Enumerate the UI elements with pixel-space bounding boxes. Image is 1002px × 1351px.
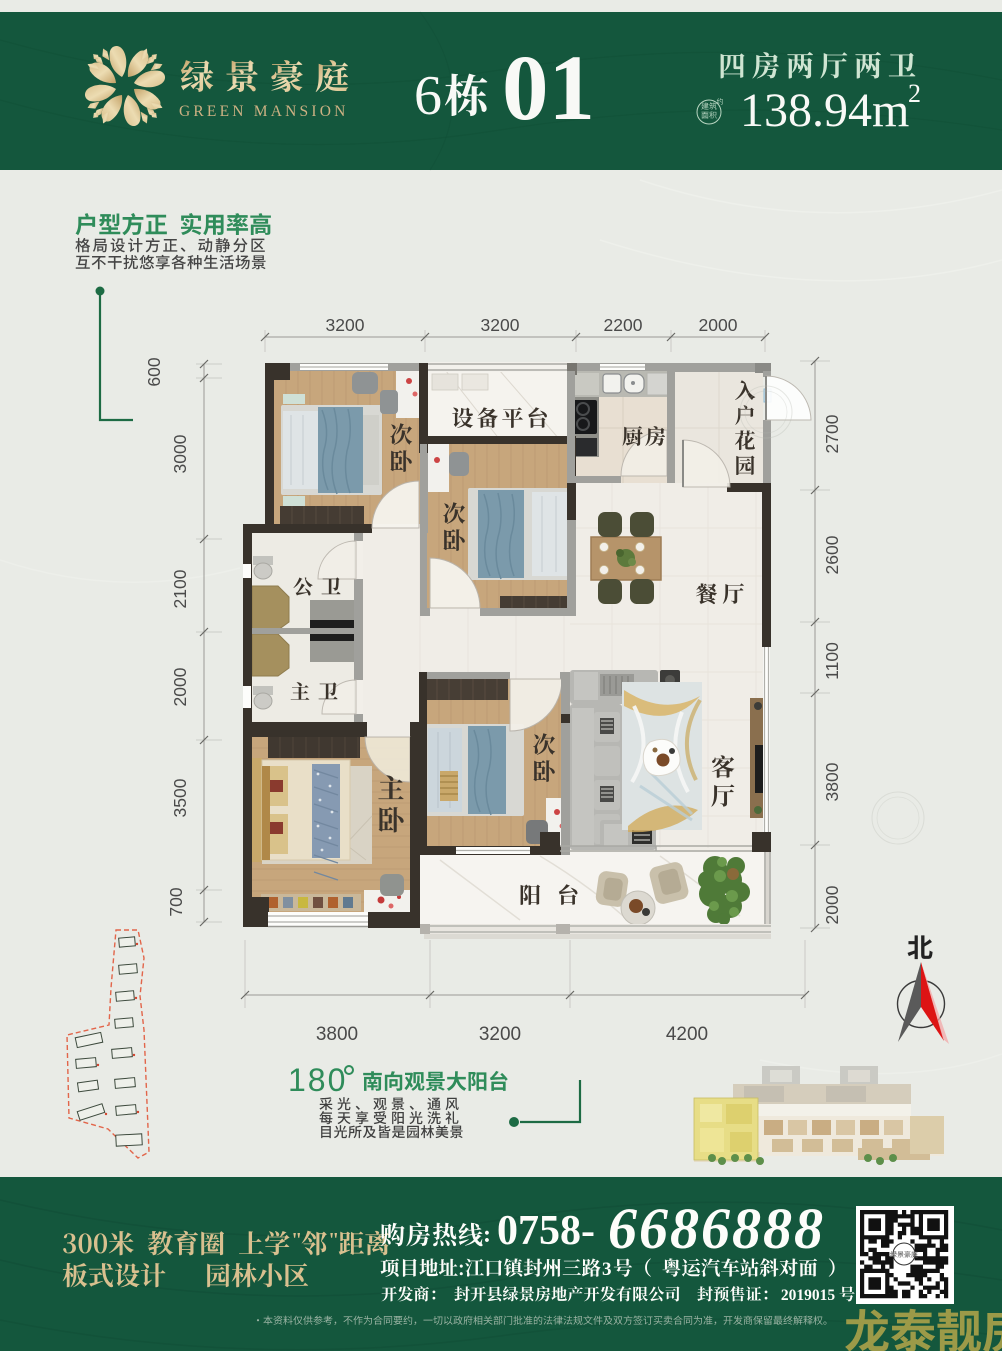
svg-text:": "	[328, 1229, 339, 1251]
svg-text:2100: 2100	[170, 569, 190, 608]
svg-text:3200: 3200	[481, 315, 520, 335]
svg-text:01: 01	[502, 37, 595, 140]
svg-text:2019015: 2019015	[781, 1287, 836, 1304]
svg-text:2000: 2000	[170, 667, 190, 706]
svg-text:600: 600	[144, 357, 164, 386]
svg-text:3200: 3200	[479, 1024, 521, 1045]
svg-text:3500: 3500	[170, 778, 190, 817]
svg-text:3800: 3800	[316, 1024, 358, 1045]
svg-text:2600: 2600	[822, 535, 842, 574]
svg-text:2700: 2700	[822, 414, 842, 453]
svg-text::: :	[483, 1222, 491, 1248]
svg-text:3000: 3000	[170, 434, 190, 473]
svg-text:0758-: 0758-	[497, 1208, 595, 1254]
svg-text:2000: 2000	[699, 315, 738, 335]
svg-text:180: 180	[288, 1062, 347, 1098]
svg-text:3: 3	[602, 1259, 612, 1280]
svg-text:2200: 2200	[604, 315, 643, 335]
svg-text:": "	[291, 1229, 302, 1251]
svg-text:3200: 3200	[326, 315, 365, 335]
svg-text:700: 700	[166, 887, 186, 916]
svg-text:GREEN MANSION: GREEN MANSION	[179, 103, 348, 120]
svg-text:138.94m: 138.94m	[740, 84, 909, 137]
svg-text:2: 2	[908, 79, 921, 108]
svg-text:1100: 1100	[822, 642, 842, 680]
svg-text:2000: 2000	[822, 885, 842, 924]
svg-text:3800: 3800	[822, 762, 842, 801]
svg-text:6686888: 6686888	[608, 1196, 825, 1261]
svg-text:6: 6	[414, 65, 442, 127]
svg-text:4200: 4200	[666, 1024, 708, 1045]
